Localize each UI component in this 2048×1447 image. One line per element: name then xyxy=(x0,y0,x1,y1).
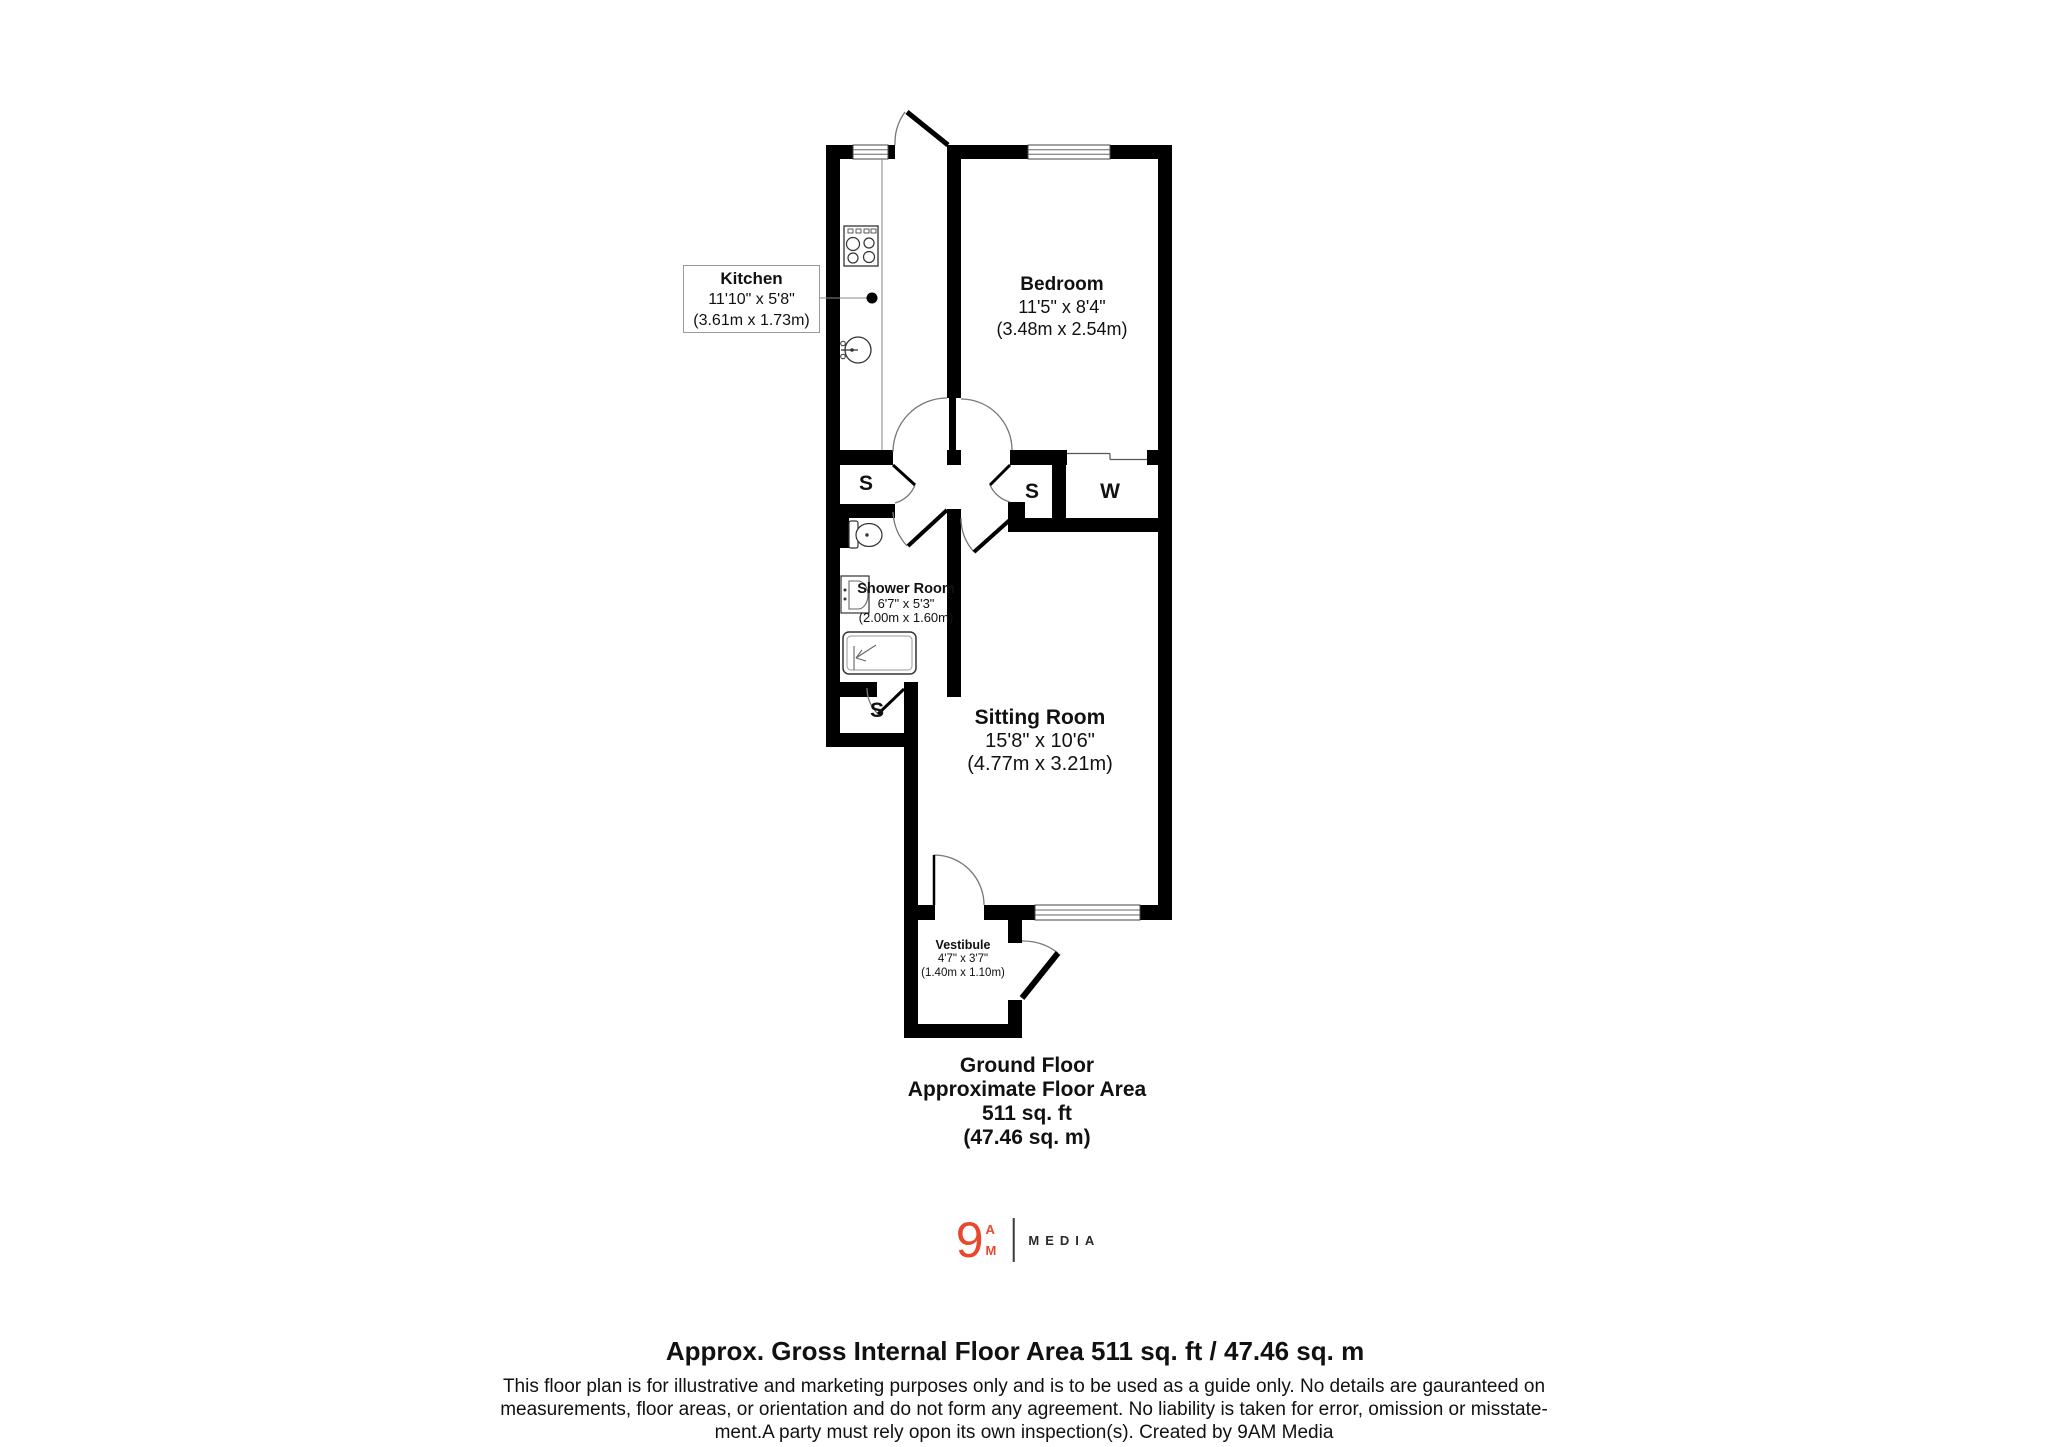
9am-media-logo: 9 A M MEDIA xyxy=(956,1218,1101,1262)
floor-summary: Ground Floor Approximate Floor Area 511 … xyxy=(908,1054,1146,1150)
room-dims-metric: (1.40m x 1.10m) xyxy=(921,966,1005,980)
kitchen-leader-dot xyxy=(867,293,878,304)
kitchen-label: Kitchen 11'10" x 5'8" (3.61m x 1.73m) xyxy=(683,265,820,333)
hob-icon xyxy=(844,226,878,266)
room-dims-imperial: 11'5" x 8'4" xyxy=(996,296,1127,318)
vestibule-label: Vestibule 4'7" x 3'7" (1.40m x 1.10m) xyxy=(921,938,1005,980)
logo-divider xyxy=(1012,1218,1014,1262)
sitting-room-label: Sitting Room 15'8" x 10'6" (4.77m x 3.21… xyxy=(967,706,1113,776)
room-dims-metric: (3.61m x 1.73m) xyxy=(684,310,819,331)
footer-area-title: Approx. Gross Internal Floor Area 511 sq… xyxy=(666,1336,1364,1367)
room-dims-imperial: 15'8" x 10'6" xyxy=(967,730,1113,753)
floor-area-sqm: (47.46 sq. m) xyxy=(908,1126,1146,1150)
room-dims-metric: (4.77m x 3.21m) xyxy=(967,753,1113,776)
storage-cupboard-label: S xyxy=(859,472,873,496)
logo-letter-a: A xyxy=(986,1223,997,1236)
wardrobe-label: W xyxy=(1100,480,1120,504)
floor-name: Ground Floor xyxy=(908,1054,1146,1078)
toilet-icon xyxy=(849,521,882,548)
door-arcs xyxy=(867,112,1058,953)
bedroom-label: Bedroom 11'5" x 8'4" (3.48m x 2.54m) xyxy=(996,273,1127,340)
room-dims-imperial: 4'7" x 3'7" xyxy=(921,952,1005,966)
logo-numeral: 9 xyxy=(956,1218,984,1262)
logo-letter-m: M xyxy=(986,1244,997,1257)
storage-cupboard-label: S xyxy=(1025,480,1039,504)
storage-cupboard-label: S xyxy=(870,699,884,723)
floor-area-caption: Approximate Floor Area xyxy=(908,1078,1146,1102)
room-name: Sitting Room xyxy=(967,706,1113,730)
logo-brand-text: MEDIA xyxy=(1028,1233,1100,1248)
disclaimer-line: measurements, floor areas, or orientatio… xyxy=(500,1398,1548,1421)
room-name: Kitchen xyxy=(684,268,819,289)
floor-area-sqft: 511 sq. ft xyxy=(908,1102,1146,1126)
room-name: Vestibule xyxy=(921,938,1005,952)
room-dims-metric: (2.00m x 1.60m) xyxy=(857,611,954,625)
footer-disclaimer: This floor plan is for illustrative and … xyxy=(500,1375,1548,1444)
room-name: Bedroom xyxy=(996,273,1127,296)
floorplan-page: Kitchen 11'10" x 5'8" (3.61m x 1.73m) Be… xyxy=(0,0,2048,1447)
disclaimer-line: This floor plan is for illustrative and … xyxy=(500,1375,1548,1398)
shower-room-label: Shower Room 6'7" x 5'3" (2.00m x 1.60m) xyxy=(857,582,954,625)
room-name: Shower Room xyxy=(857,582,954,597)
sink-icon xyxy=(841,337,871,363)
disclaimer-line: ment.A party must rely opon its own insp… xyxy=(500,1421,1548,1444)
room-dims-metric: (3.48m x 2.54m) xyxy=(996,318,1127,340)
shower-tray-icon xyxy=(843,632,916,674)
wardrobe-front-icon xyxy=(1067,454,1147,460)
room-dims-imperial: 11'10" x 5'8" xyxy=(684,289,819,310)
room-dims-imperial: 6'7" x 5'3" xyxy=(857,597,954,611)
